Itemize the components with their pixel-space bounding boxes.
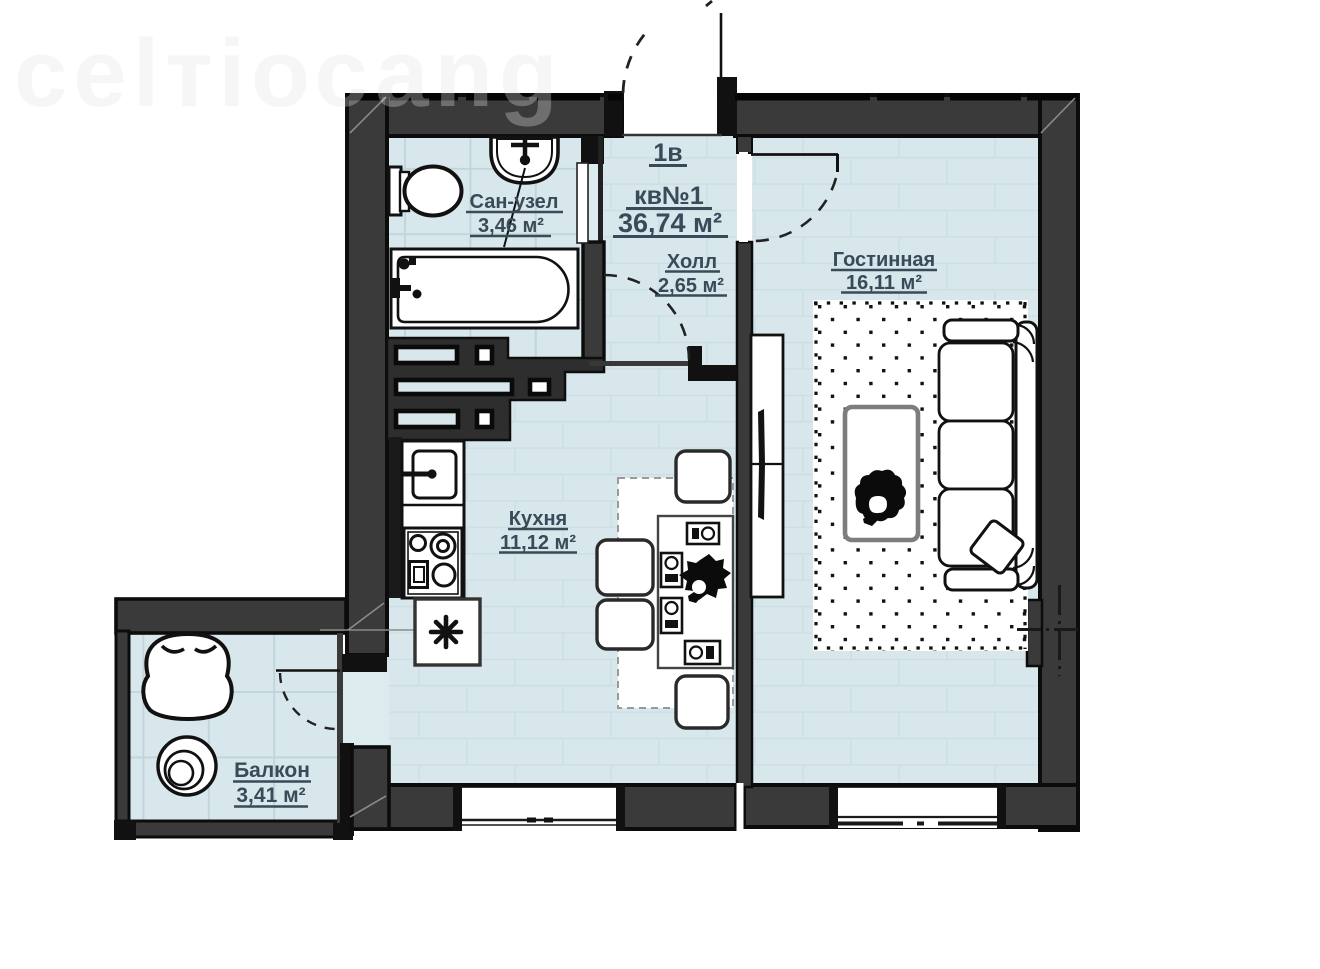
svg-text:Кухня: Кухня	[509, 508, 567, 530]
svg-text:Балкон: Балкон	[234, 759, 310, 782]
svg-text:1в: 1в	[653, 139, 682, 167]
svg-text:16,11 м²: 16,11 м²	[846, 272, 922, 294]
svg-text:Гостинная: Гостинная	[833, 249, 935, 271]
svg-text:кв№1: кв№1	[634, 182, 704, 210]
svg-text:36,74 м²: 36,74 м²	[618, 208, 722, 238]
svg-text:3,41 м²: 3,41 м²	[236, 784, 305, 807]
svg-text:3,46 м²: 3,46 м²	[478, 215, 544, 237]
svg-text:Сан-узел: Сан-узел	[470, 191, 559, 213]
svg-text:Холл: Холл	[667, 251, 717, 273]
svg-text:2,65 м²: 2,65 м²	[658, 275, 724, 297]
svg-text:11,12 м²: 11,12 м²	[500, 532, 576, 554]
svg-text:celтiосаng: celтiосаng	[14, 20, 564, 127]
